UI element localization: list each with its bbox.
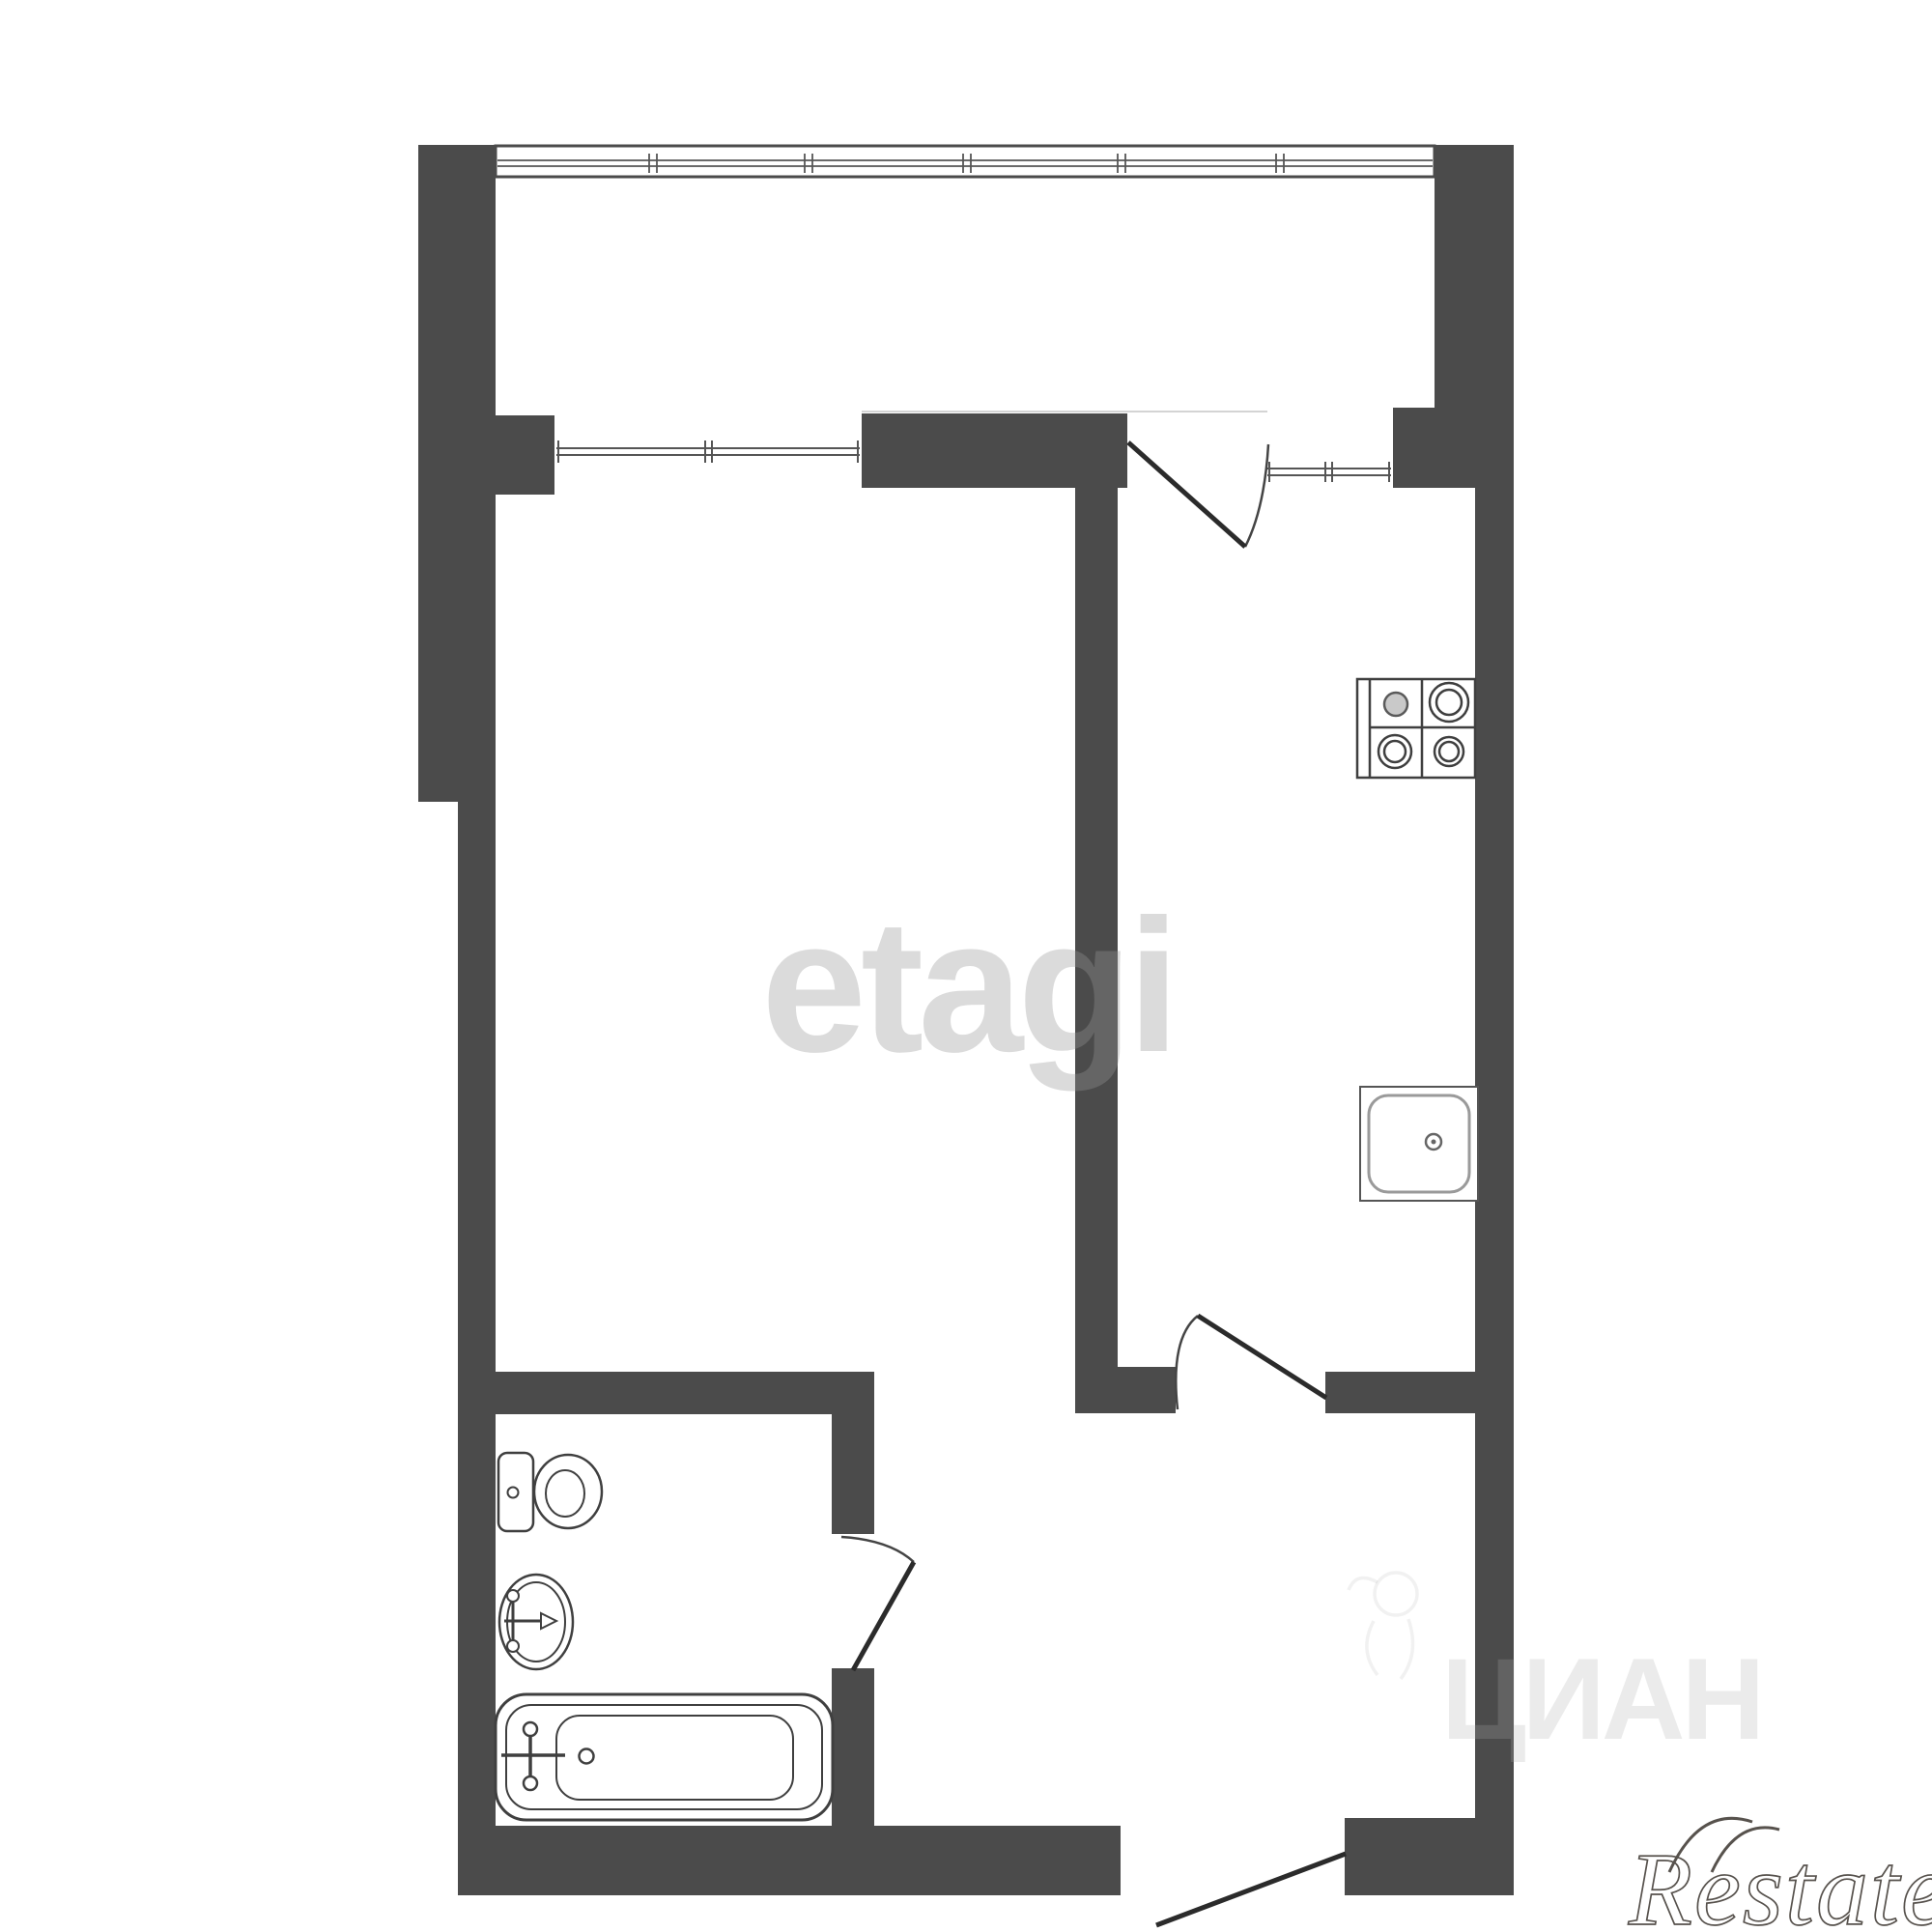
watermark-cian: ЦИАН — [1349, 1573, 1761, 1764]
door-swing-arc — [841, 1537, 914, 1562]
burner — [1384, 693, 1407, 716]
wall-bathroom-right-upper — [832, 1414, 874, 1534]
toilet-bowl-inner — [546, 1470, 584, 1517]
watermark-restate: Restate — [1628, 1818, 1932, 1932]
balcony-top-window — [496, 146, 1435, 177]
hall-kitchen-door — [1176, 1316, 1326, 1409]
room-window — [554, 415, 862, 495]
door-swing-arc — [1176, 1316, 1198, 1409]
door-leaf — [1198, 1316, 1326, 1398]
kitchen-sink-icon — [1360, 1087, 1478, 1201]
balcony-kitchen-door — [1128, 442, 1268, 547]
burner — [1384, 741, 1406, 762]
watermark-restate-text: Restate — [1628, 1833, 1932, 1932]
wall-balcony-bottom-mid — [862, 413, 1127, 488]
faucet-knob — [507, 1640, 519, 1652]
door-swing-arc — [1245, 444, 1268, 547]
burner — [1439, 742, 1459, 761]
faucet-knob — [524, 1722, 537, 1736]
bathtub-icon — [496, 1694, 833, 1820]
door-leaf — [853, 1562, 914, 1670]
watermark-etagi: etagi — [761, 880, 1174, 1092]
cian-bird-icon — [1349, 1573, 1417, 1679]
wall-balcony-bottom-left — [473, 415, 554, 495]
wall-bottom-right-corner — [1345, 1818, 1514, 1895]
wall-bathroom-right-lower — [832, 1668, 874, 1826]
faucet-knob — [524, 1776, 537, 1790]
wall-bathroom-top — [458, 1372, 874, 1414]
watermark-cian-text: ЦИАН — [1441, 1634, 1761, 1764]
wall-hall-kitchen-right — [1325, 1372, 1475, 1413]
washbasin-icon — [499, 1575, 573, 1669]
door-leaf — [1128, 442, 1245, 547]
toilet-button — [508, 1488, 519, 1498]
wall-right-upper — [1435, 145, 1514, 415]
drain-dot — [1432, 1140, 1436, 1145]
floor-plan-page: etagi ЦИАН Restate — [0, 0, 1932, 1932]
wall-bottom — [458, 1826, 1121, 1895]
faucet-knob — [507, 1590, 519, 1602]
toilet-icon — [498, 1453, 602, 1531]
window-frame — [496, 146, 1435, 177]
stove-icon — [1357, 679, 1475, 778]
kitchen-window — [1265, 410, 1393, 488]
wall-left-lower — [458, 802, 496, 1895]
bathroom-door — [841, 1537, 914, 1670]
floor-plan-canvas: etagi ЦИАН Restate — [0, 0, 1932, 1932]
wall-hall-kitchen-left — [1075, 1367, 1176, 1413]
drain — [580, 1749, 594, 1764]
entry-door — [1156, 1854, 1346, 1925]
door-leaf — [1156, 1854, 1346, 1925]
burner — [1436, 690, 1462, 715]
